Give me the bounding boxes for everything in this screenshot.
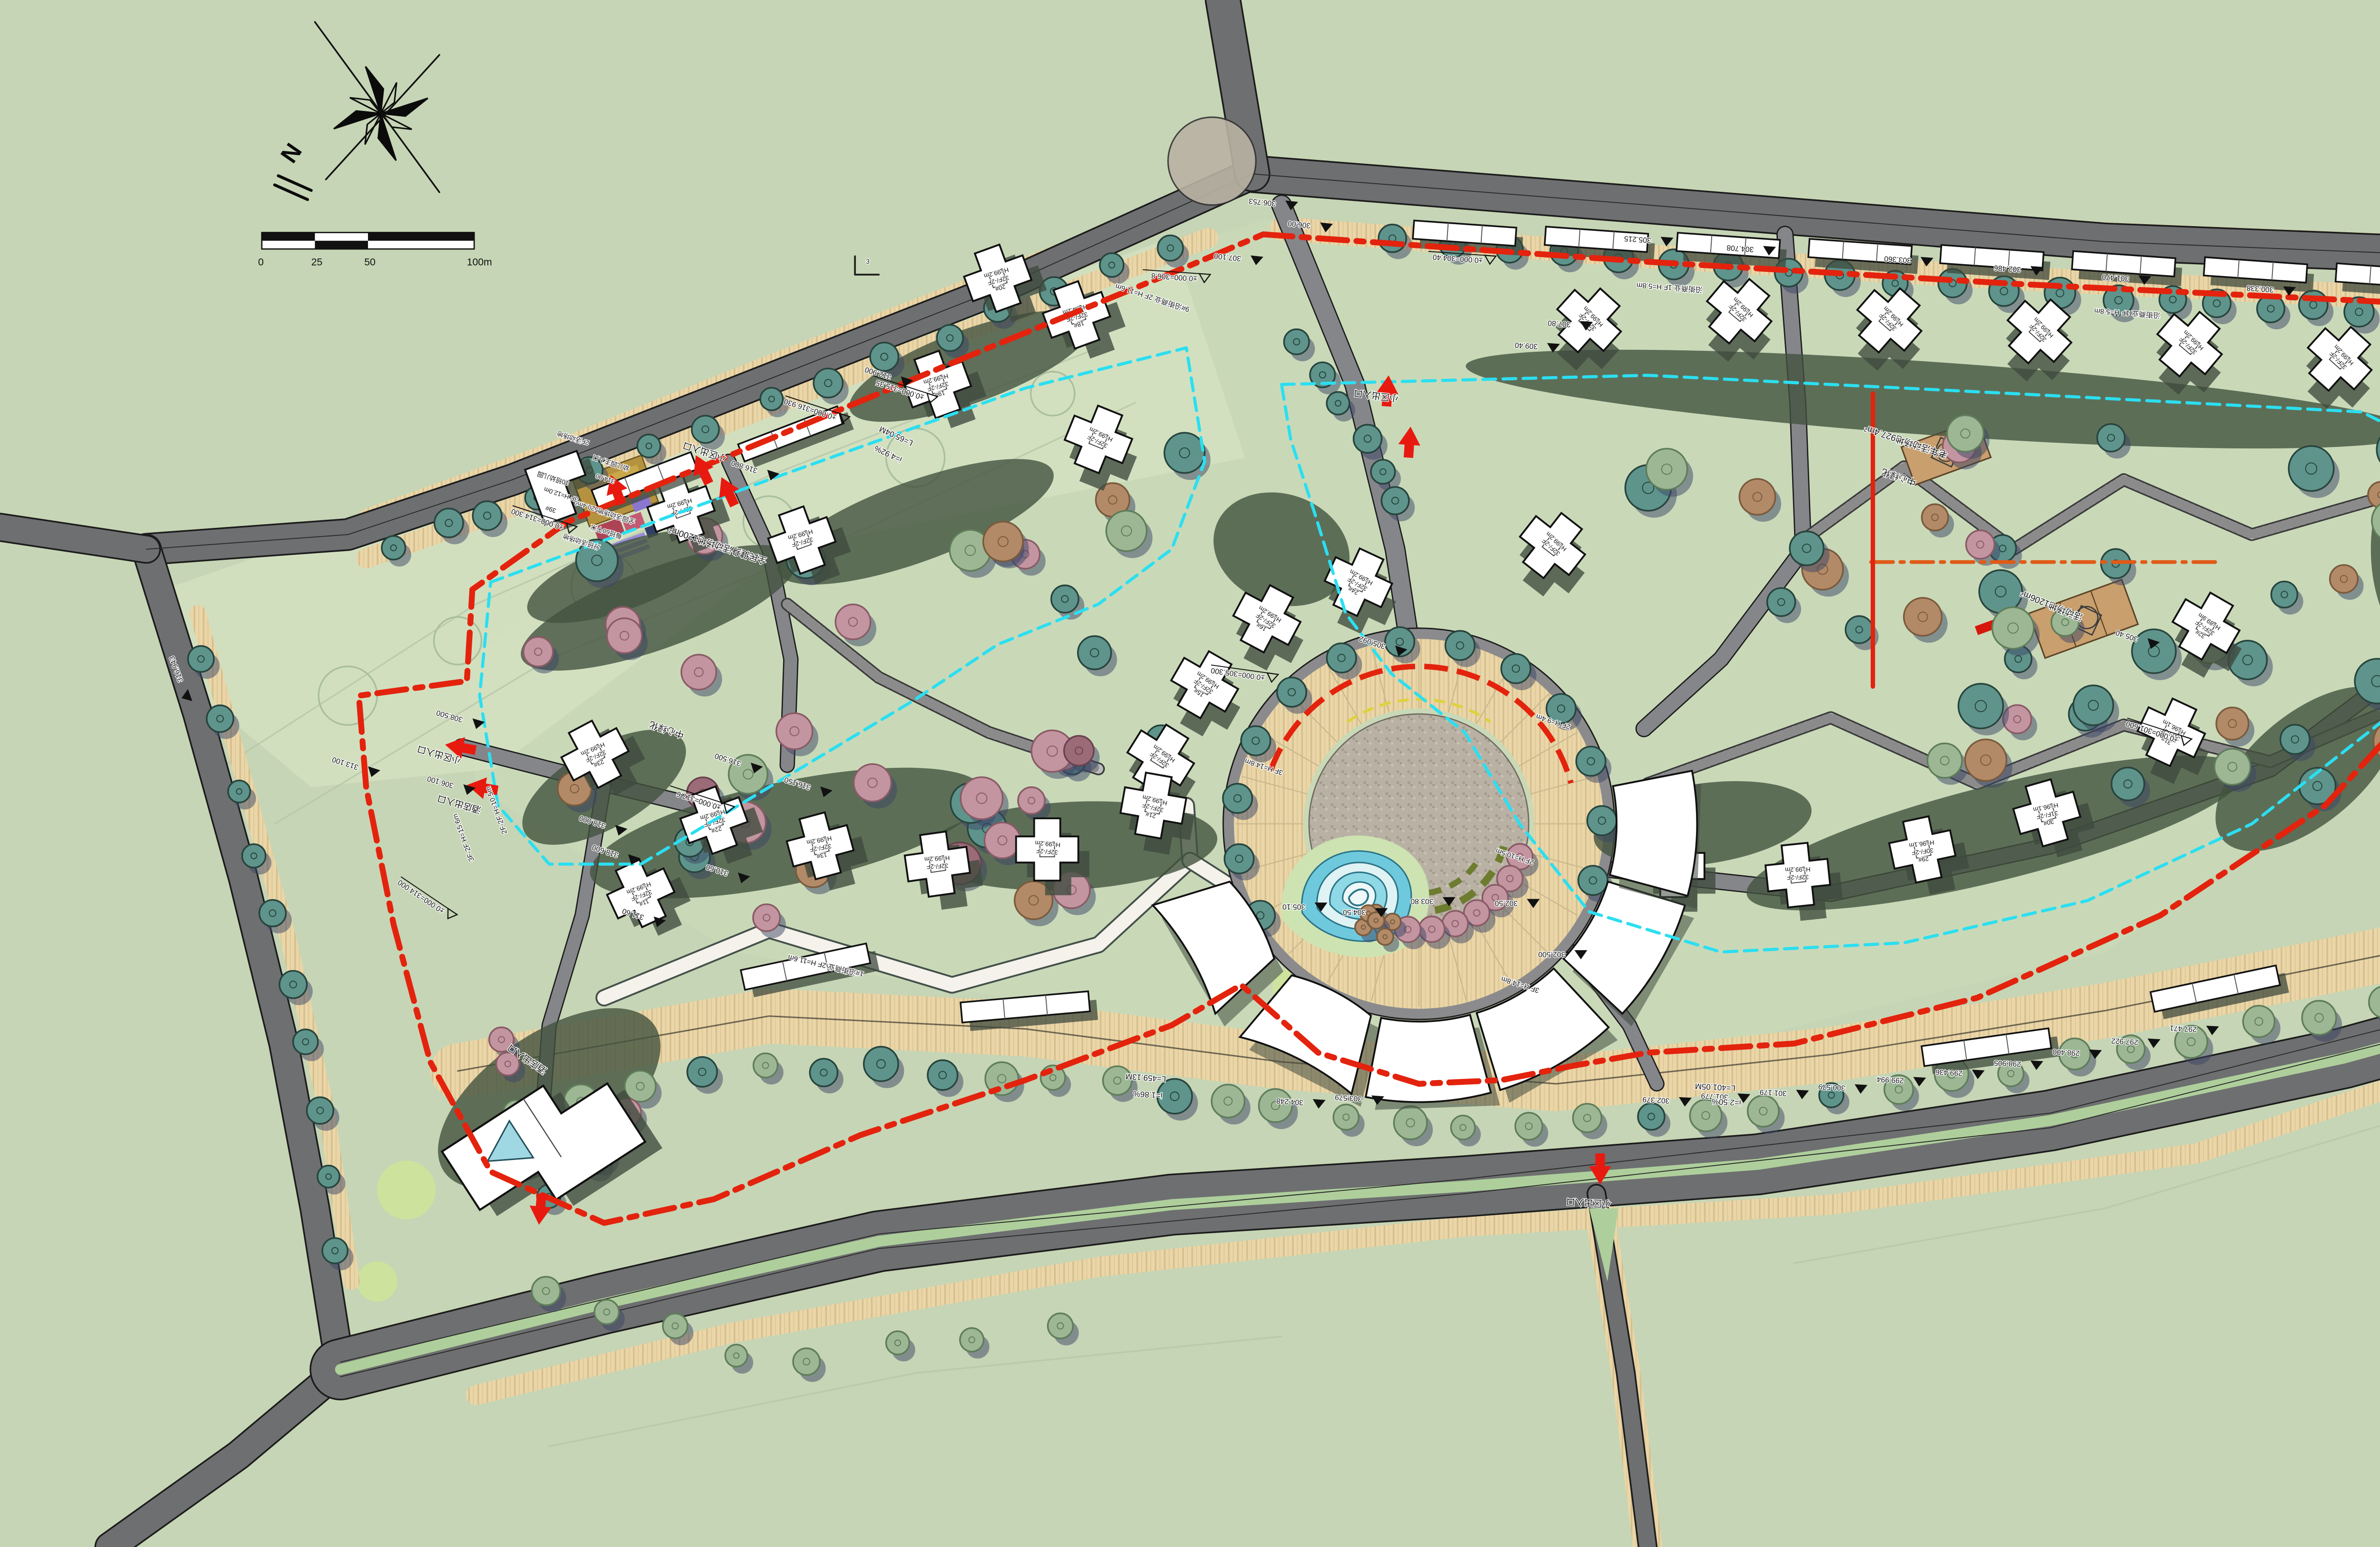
sage-tree [1927, 744, 1962, 778]
sage-tree [1992, 607, 2033, 649]
annotation: 302.50 [1495, 899, 1540, 908]
sage-tree [960, 1328, 983, 1351]
teal-tree [810, 1059, 837, 1086]
teal-tree [1223, 783, 1252, 813]
pink-tree [961, 777, 1002, 819]
spot-label: 301.179 [1759, 1088, 1787, 1097]
sage-tree [725, 1345, 747, 1367]
teal-tree [1241, 726, 1270, 755]
teal-tree [293, 1030, 318, 1054]
stat-label: i=1.86% [1133, 1089, 1163, 1100]
sage-tree [2214, 749, 2251, 785]
scalebar-label: 0 [258, 257, 264, 268]
scalebar-label: 25 [311, 257, 323, 268]
teal-tree [259, 900, 286, 927]
teal-tree [864, 1047, 898, 1081]
annotation: 304.50 [1343, 908, 1388, 917]
spot-label: 302.50 [1495, 899, 1517, 907]
teal-tree [435, 508, 463, 537]
site-plan-canvas: 32F/-2FH=99.2m32F/-2FH=99.2m32F/-2FH=99.… [0, 0, 2380, 1547]
teal-tree [692, 416, 719, 443]
plaza-wedge-building [1366, 1015, 1491, 1102]
sage-tree [1646, 449, 1687, 490]
sage-tree [1333, 1104, 1359, 1130]
spot-label: 299.436 [1935, 1068, 1963, 1077]
teal-tree [2112, 768, 2144, 801]
teal-tree [2289, 446, 2334, 491]
lawn-blob [357, 1261, 397, 1302]
teal-tree [1164, 433, 1205, 473]
spot-label: 302.500 [1538, 950, 1565, 958]
sage-tree [595, 1300, 619, 1324]
annotation: i=1.86% [1133, 1089, 1163, 1100]
sage-tree [625, 1071, 655, 1101]
tower-label: 32F/-2FH=99.2m [924, 854, 950, 871]
brown-tree [2330, 565, 2358, 593]
sage-tree [2243, 1006, 2274, 1037]
teal-tree [2299, 290, 2328, 319]
teal-tree [1158, 235, 1183, 260]
scalebar-label: 50 [364, 257, 376, 268]
teal-tree [207, 705, 233, 732]
teal-tree [928, 1060, 958, 1090]
teal-tree [1051, 585, 1078, 613]
scalebar-seg [368, 232, 474, 240]
teal-tree [242, 844, 266, 867]
spot-label: 298.905 [1993, 1059, 2021, 1068]
teal-tree [1638, 1103, 1665, 1130]
stat-label: i=2.50% [1711, 1097, 1741, 1107]
pink-tree [1018, 787, 1045, 814]
teal-tree [870, 343, 898, 371]
sage-tree [2302, 1001, 2336, 1035]
annotation: 3 [866, 258, 869, 265]
teal-tree [937, 325, 963, 351]
sage-tree [532, 1277, 560, 1305]
tower-label-line: H=99.2m [1785, 866, 1811, 873]
annotation: 303.80 [1410, 897, 1456, 906]
spot-label: 309.40 [1515, 341, 1538, 350]
site-plan-stage: 32F/-2FH=99.2m32F/-2FH=99.2m32F/-2FH=99.… [0, 0, 2380, 1547]
spot-label: 300.579 [1818, 1082, 1845, 1092]
brown-tree [1377, 929, 1394, 945]
teal-tree [1157, 1079, 1192, 1114]
teal-tree [1501, 654, 1531, 684]
teal-tree [317, 1166, 339, 1188]
teal-tree [1284, 329, 1309, 355]
teal-tree [228, 781, 250, 803]
plaza-wedge-building [1610, 771, 1697, 896]
sage-tree [1947, 415, 1984, 452]
teal-tree [1224, 844, 1254, 873]
teal-tree [1378, 225, 1406, 252]
brown-tree [1922, 504, 1948, 530]
scalebar-seg [262, 232, 315, 240]
teal-tree [1327, 643, 1356, 673]
teal-tree [813, 368, 843, 397]
tower-label-line: 29# [1918, 855, 1929, 863]
teal-tree [1576, 746, 1606, 776]
tower-label: 32F/-2FH=99.2m [1034, 839, 1061, 856]
sage-tree [1573, 1104, 1601, 1132]
brown-tree [1965, 739, 2006, 781]
sage-tree [1211, 1085, 1244, 1118]
teal-tree [2271, 582, 2298, 608]
entry-circle-plaza [1168, 117, 1256, 205]
teal-tree [473, 501, 502, 530]
teal-tree [687, 1057, 717, 1087]
pink-tree [681, 654, 716, 689]
teal-tree [1979, 570, 2022, 613]
sage-tree [1748, 1096, 1779, 1127]
pink-tree [854, 764, 892, 802]
teal-tree [1845, 616, 1873, 643]
teal-tree [307, 1097, 334, 1124]
arrow-tail [1596, 1153, 1605, 1168]
teal-tree [1381, 487, 1409, 515]
teal-tree [760, 388, 783, 410]
spot-label: 298.400 [2052, 1048, 2080, 1057]
tower-label-line: 32F/-2F [926, 862, 948, 870]
teal-tree [2281, 725, 2310, 754]
spot-label: 303.80 [1410, 897, 1433, 905]
sage-tree [663, 1314, 688, 1339]
sage-tree [793, 1348, 820, 1375]
annotation: i=2.50% [1711, 1097, 1741, 1107]
spot-label: 304.50 [1343, 908, 1366, 916]
teal-tree [1327, 392, 1349, 415]
teal-tree [1277, 677, 1307, 707]
teal-tree [1371, 460, 1395, 484]
tower-label-line: H=99.2m [924, 854, 950, 863]
teal-tree [2073, 685, 2113, 725]
spot-label: 307.80 [1547, 319, 1571, 328]
teal-tree [1078, 636, 1111, 669]
pink-tree [753, 904, 780, 932]
sage-tree [1259, 1089, 1292, 1122]
sage-tree [886, 1331, 910, 1355]
scalebar-seg [315, 241, 368, 249]
sage-tree [1048, 1313, 1073, 1339]
teal-tree [2097, 424, 2125, 452]
pink-tree [524, 637, 553, 666]
tower-label: 32F/-2FH=99.2m [1785, 866, 1811, 881]
brown-tree [1904, 598, 1942, 636]
sage-tree [754, 1053, 778, 1078]
pink-tree [984, 823, 1020, 858]
brown-tree [2216, 707, 2249, 740]
teal-tree [1958, 684, 2003, 728]
teal-tree [1354, 425, 1382, 453]
teal-tree [637, 435, 660, 457]
teal-tree [1578, 866, 1608, 895]
pink-tree [776, 713, 813, 749]
teal-tree [1767, 588, 1795, 616]
spot-label: 297.922 [2111, 1037, 2139, 1046]
spot-label: 302.379 [1642, 1095, 1670, 1105]
teal-tree [1100, 253, 1124, 277]
maroon-tree [1064, 736, 1093, 765]
pink-tree [607, 618, 642, 653]
small-label: 3 [866, 258, 869, 265]
pink-tree [835, 605, 870, 639]
teal-tree [188, 646, 214, 672]
sage-tree [1106, 511, 1147, 551]
teal-tree [1790, 531, 1824, 565]
sage-tree [1515, 1113, 1542, 1140]
brown-tree [1739, 479, 1775, 515]
pink-tree [1966, 530, 1994, 559]
teal-tree [1587, 806, 1617, 835]
scalebar-label: 100m [467, 257, 492, 268]
tower-label-line: 32F/-2F [1787, 873, 1809, 881]
teal-tree [382, 536, 406, 560]
sage-tree [1451, 1116, 1475, 1140]
lawn-blob [377, 1160, 436, 1219]
sage-tree [1394, 1106, 1427, 1139]
annotation: 305.10 [1282, 902, 1328, 912]
teal-tree [1446, 631, 1475, 660]
spot-label: 305.10 [1282, 902, 1305, 911]
spot-label: 299.994 [1876, 1075, 1904, 1084]
spot-label: 297.471 [2170, 1024, 2197, 1033]
brown-tree [983, 522, 1023, 562]
teal-tree [279, 971, 307, 999]
teal-tree [322, 1238, 347, 1263]
